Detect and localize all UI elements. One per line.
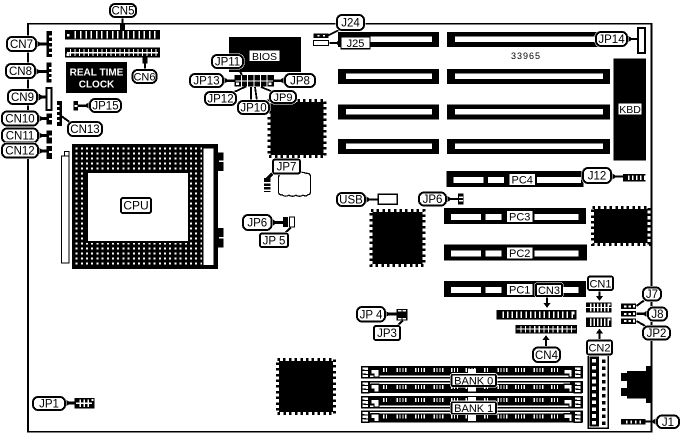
svg-text:CPU: CPU (123, 199, 148, 213)
svg-text:J7: J7 (646, 289, 658, 301)
svg-text:33965: 33965 (511, 51, 541, 61)
svg-text:CLOCK: CLOCK (79, 80, 115, 91)
svg-text:J25: J25 (347, 38, 365, 50)
svg-text:KBD: KBD (619, 104, 641, 116)
svg-text:CN9: CN9 (11, 92, 34, 104)
svg-text:JP15: JP15 (92, 101, 118, 113)
svg-text:J12: J12 (588, 171, 607, 183)
svg-text:BANK 1: BANK 1 (454, 403, 493, 415)
svg-text:CN13: CN13 (70, 124, 99, 136)
svg-text:CN7: CN7 (10, 39, 33, 51)
svg-text:JP9: JP9 (274, 92, 293, 104)
svg-text:BIOS: BIOS (252, 51, 277, 63)
svg-text:USB: USB (339, 195, 363, 207)
svg-text:JP12: JP12 (207, 94, 233, 106)
svg-text:JP 5: JP 5 (263, 235, 286, 247)
svg-text:JP1: JP1 (39, 399, 59, 411)
svg-text:JP2: JP2 (647, 328, 667, 340)
svg-text:PC4: PC4 (511, 175, 532, 187)
svg-text:JP3: JP3 (377, 328, 397, 340)
svg-text:JP11: JP11 (215, 57, 240, 69)
svg-text:CN3: CN3 (538, 285, 560, 297)
svg-text:CN1: CN1 (589, 278, 611, 290)
svg-text:CN12: CN12 (5, 146, 34, 158)
svg-text:CN4: CN4 (535, 350, 559, 362)
svg-text:CN2: CN2 (588, 343, 610, 355)
svg-text:CN6: CN6 (133, 72, 155, 84)
svg-text:J1: J1 (662, 417, 674, 429)
svg-text:JP6: JP6 (423, 194, 443, 206)
svg-text:CN5: CN5 (111, 6, 134, 18)
svg-text:PC2: PC2 (509, 248, 530, 260)
svg-text:CN8: CN8 (9, 66, 32, 78)
svg-text:JP7: JP7 (277, 162, 297, 174)
svg-text:PC1: PC1 (509, 285, 530, 297)
svg-text:JP6: JP6 (247, 218, 267, 230)
svg-text:CN10: CN10 (5, 114, 34, 126)
svg-text:JP10: JP10 (240, 103, 266, 115)
svg-text:REAL TIME: REAL TIME (70, 68, 124, 79)
svg-text:J8: J8 (651, 309, 663, 321)
svg-text:PC3: PC3 (509, 212, 530, 224)
svg-text:JP13: JP13 (193, 76, 219, 88)
svg-text:BANK 0: BANK 0 (454, 375, 493, 387)
svg-text:CN11: CN11 (6, 131, 35, 143)
svg-text:J24: J24 (341, 18, 360, 30)
svg-text:JP8: JP8 (290, 76, 310, 88)
svg-text:JP14: JP14 (598, 34, 625, 46)
svg-text:JP 4: JP 4 (360, 309, 383, 321)
